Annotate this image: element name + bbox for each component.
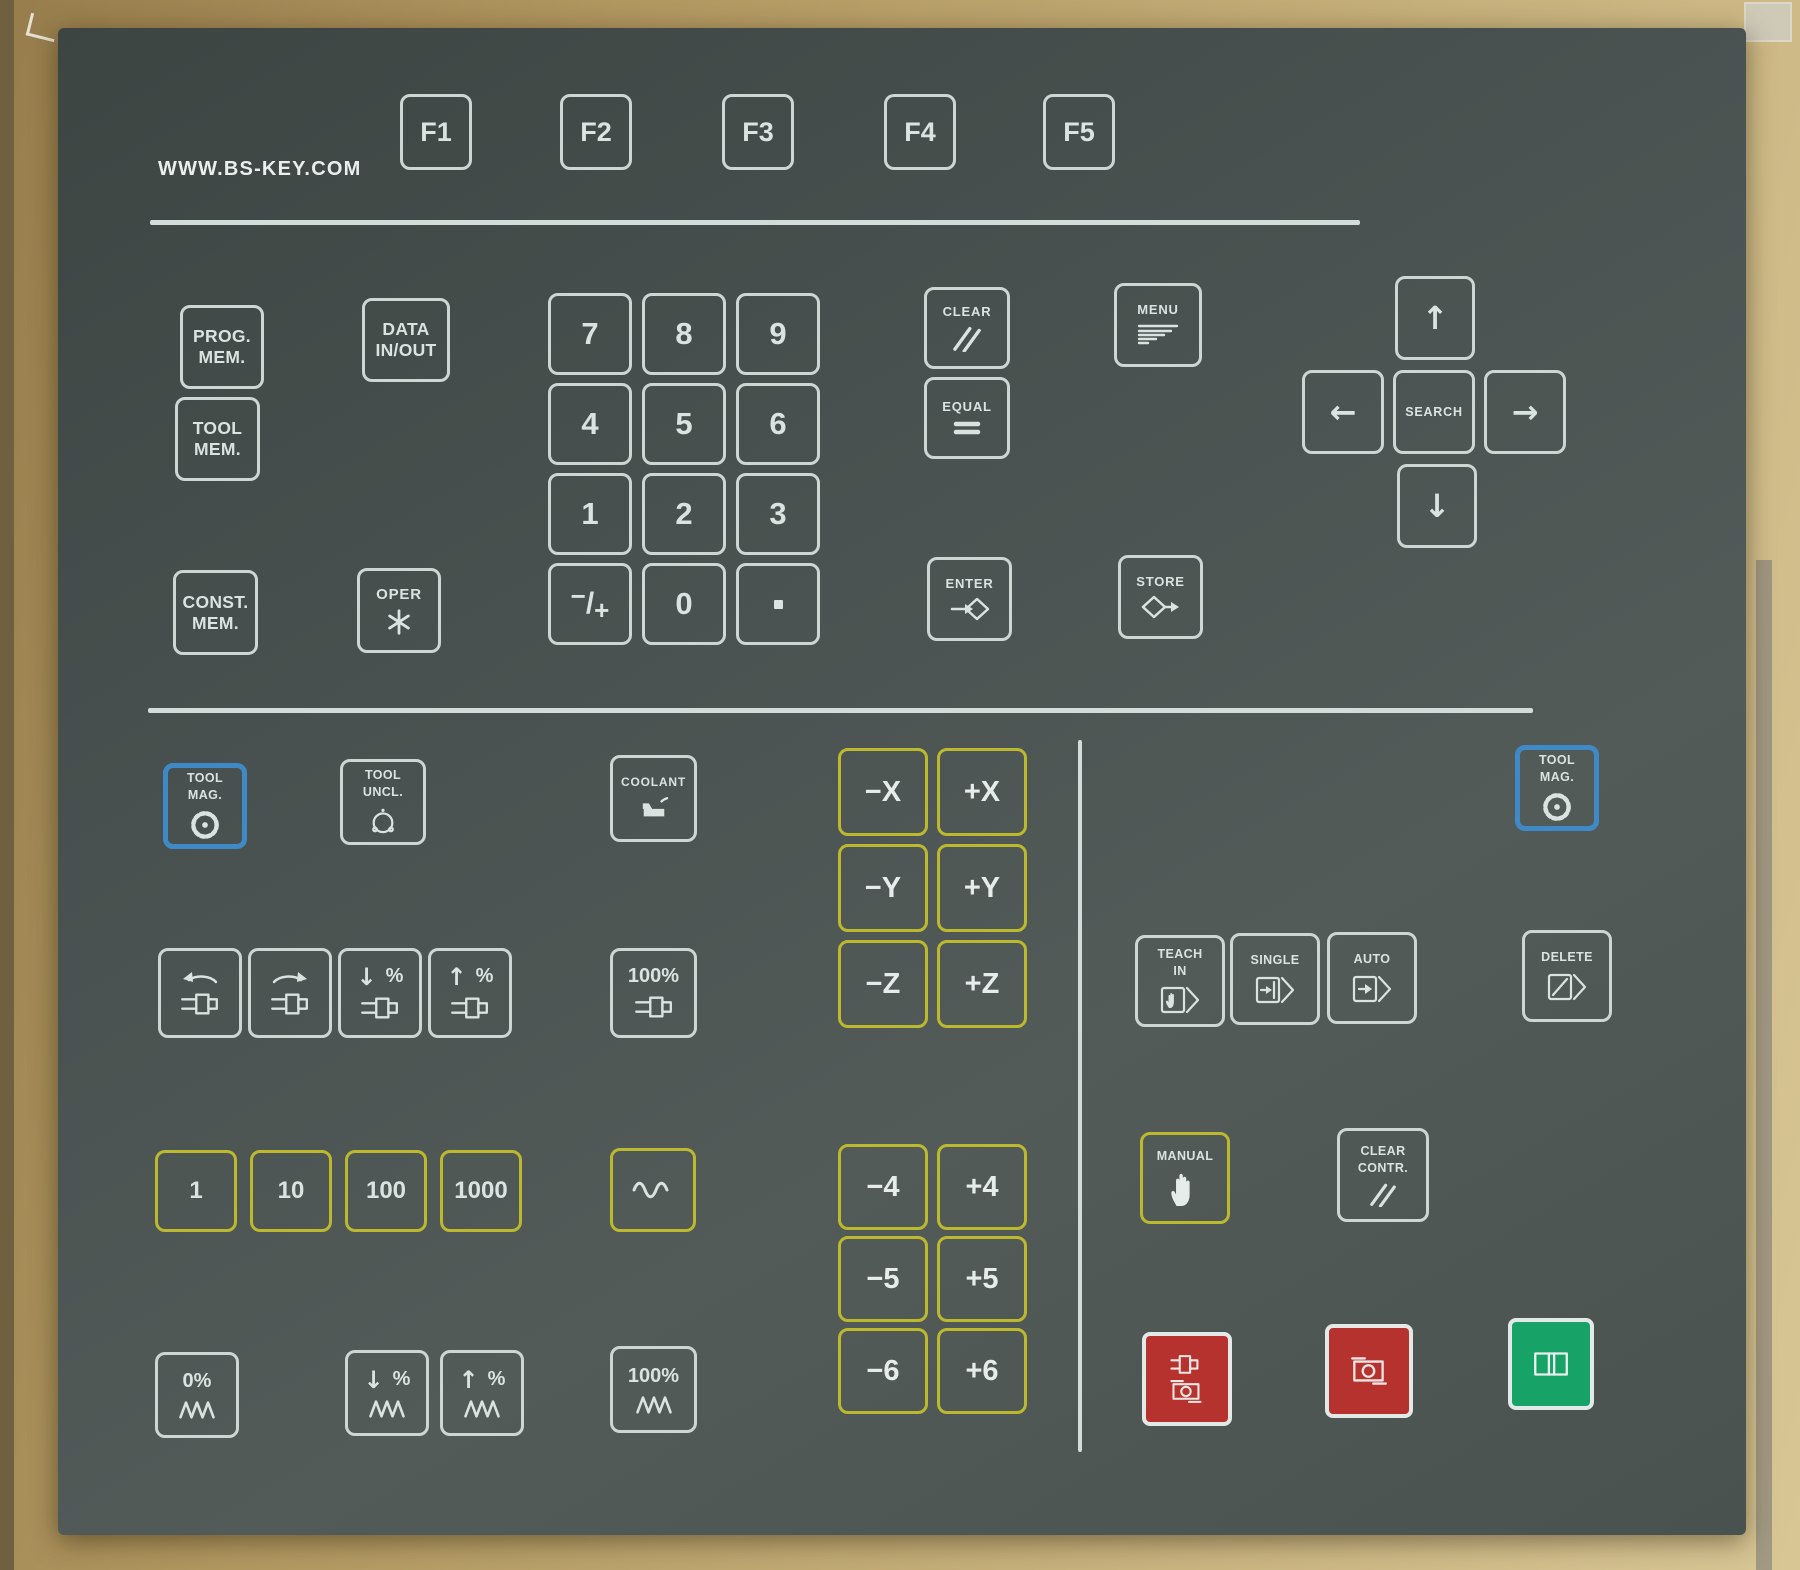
spindle-ccw-key[interactable] <box>158 948 242 1038</box>
delete-key[interactable]: DELETE <box>1522 930 1612 1022</box>
cardboard-left-edge <box>0 0 14 1570</box>
digit-3-label: 3 <box>769 496 786 532</box>
spindle-icon <box>357 994 403 1022</box>
feed-down-percent: ↓% <box>364 1368 411 1392</box>
teach-in-key[interactable]: TEACHIN <box>1135 935 1225 1027</box>
axis-4-minus-key[interactable]: −4 <box>838 1144 928 1230</box>
digit-8-key[interactable]: 8 <box>642 293 726 375</box>
digit-7-key[interactable]: 7 <box>548 293 632 375</box>
asterisk-icon <box>385 608 413 636</box>
left-arrow-icon: ← <box>1330 396 1357 428</box>
ccw-arc-arrow-icon <box>177 969 223 985</box>
spindle-icon <box>267 990 313 1018</box>
store-label: STORE <box>1136 574 1185 589</box>
continuous-jog-key[interactable] <box>610 1148 696 1232</box>
tool-unclamp-key[interactable]: TOOLUNCL. <box>340 759 426 845</box>
coolant-label: COOLANT <box>621 775 686 789</box>
plus-minus-label: −/+ <box>571 587 610 621</box>
digit-7-label: 7 <box>581 316 598 352</box>
decimal-point-key[interactable] <box>736 563 820 645</box>
spindle-override-100-key[interactable]: 100% <box>610 948 697 1038</box>
jog-step-1000-key[interactable]: 1000 <box>440 1150 522 1232</box>
coolant-key[interactable]: COOLANT <box>610 755 697 842</box>
tool-unclamp-label: TOOLUNCL. <box>363 767 403 800</box>
digit-0-key[interactable]: 0 <box>642 563 726 645</box>
equal-label: EQUAL <box>942 399 992 414</box>
paper-corner-mark <box>1744 2 1792 42</box>
digit-2-label: 2 <box>675 496 692 532</box>
axis-z-minus-label: −Z <box>866 968 901 1001</box>
digit-9-key[interactable]: 9 <box>736 293 820 375</box>
f3-key[interactable]: F3 <box>722 94 794 170</box>
spindle-icon <box>631 993 677 1021</box>
f1-key[interactable]: F1 <box>400 94 472 170</box>
f4-label: F4 <box>904 117 936 148</box>
axis-y-plus-label: +Y <box>964 872 1000 905</box>
clear-label: CLEAR <box>943 304 992 319</box>
axis-x-plus-key[interactable]: +X <box>937 748 1027 836</box>
digit-5-key[interactable]: 5 <box>642 383 726 465</box>
jog-step-100-key[interactable]: 100 <box>345 1150 427 1232</box>
jog-step-10-key[interactable]: 10 <box>250 1150 332 1232</box>
axis-z-plus-key[interactable]: +Z <box>937 940 1027 1028</box>
jog-step-10-label: 10 <box>278 1177 305 1205</box>
axis-z-plus-label: +Z <box>965 968 1000 1001</box>
jog-step-1000-label: 1000 <box>454 1177 507 1205</box>
spindle-and-feed-stop-icon <box>1165 1353 1209 1405</box>
oper-label: OPER <box>376 586 422 603</box>
auto-arrow-box-icon <box>1351 973 1393 1005</box>
down-arrow-icon: ↓ <box>1424 490 1451 522</box>
tool-mag-right-key[interactable]: TOOLMAG. <box>1515 745 1599 831</box>
axis-5-plus-label: +5 <box>965 1263 998 1296</box>
equal-key[interactable]: EQUAL <box>924 377 1010 459</box>
tool-magazine-wheel-icon <box>1540 790 1574 824</box>
tool-mem-key[interactable]: TOOLMEM. <box>175 397 260 481</box>
manual-mode-key[interactable]: MANUAL <box>1140 1132 1230 1224</box>
axis-4-plus-label: +4 <box>965 1171 998 1204</box>
spindle-up-percent: ↑% <box>447 965 494 989</box>
plus-minus-key[interactable]: −/+ <box>548 563 632 645</box>
sine-wave-icon <box>630 1179 676 1201</box>
zigzag-feed-icon <box>632 1393 676 1415</box>
spindle-icon <box>447 994 493 1022</box>
up-arrow-icon: ↑ <box>1422 302 1449 334</box>
cnc-keypad-panel: WWW.BS-KEY.COM F1 F2 F3 F4 F5 PROG.MEM. … <box>58 28 1746 1535</box>
clear-key[interactable]: CLEAR <box>924 287 1010 369</box>
prog-mem-label: PROG.MEM. <box>193 326 251 367</box>
prog-mem-key[interactable]: PROG.MEM. <box>180 305 264 389</box>
spindle-override-up-key[interactable]: ↑% <box>428 948 512 1038</box>
section-divider-middle <box>148 708 1533 713</box>
zigzag-feed-icon <box>460 1397 504 1419</box>
f5-key[interactable]: F5 <box>1043 94 1115 170</box>
oper-key[interactable]: OPER <box>357 568 441 653</box>
digit-1-label: 1 <box>581 496 598 532</box>
paper-corner-mark-left <box>26 13 60 42</box>
feed-override-0-key[interactable]: 0% <box>155 1352 239 1438</box>
enter-label: ENTER <box>945 576 993 591</box>
feed-stop-icon <box>1347 1353 1391 1389</box>
spindle-feed-stop-key[interactable] <box>1142 1332 1232 1426</box>
spindle-down-percent: ↓% <box>357 965 404 989</box>
brand-text: WWW.BS-KEY.COM <box>158 158 361 181</box>
down-arrow-key[interactable]: ↓ <box>1397 464 1477 548</box>
digit-4-key[interactable]: 4 <box>548 383 632 465</box>
equals-icon <box>952 419 982 437</box>
left-arrow-key[interactable]: ← <box>1302 370 1384 454</box>
const-mem-label: CONST.MEM. <box>183 592 249 633</box>
tool-mag-right-label: TOOLMAG. <box>1539 752 1575 785</box>
enter-arrow-diamond-icon <box>949 596 991 622</box>
digit-2-key[interactable]: 2 <box>642 473 726 555</box>
axis-6-minus-label: −6 <box>866 1355 899 1388</box>
search-label: SEARCH <box>1405 405 1463 419</box>
axis-x-minus-label: −X <box>865 776 901 809</box>
collet-icon <box>367 805 399 837</box>
feed-100-label: 100% <box>628 1365 679 1388</box>
spindle-100-label: 100% <box>628 965 679 988</box>
teach-in-label: TEACHIN <box>1157 946 1202 979</box>
cw-arc-arrow-icon <box>267 969 313 985</box>
digit-3-key[interactable]: 3 <box>736 473 820 555</box>
axis-y-plus-key[interactable]: +Y <box>937 844 1027 932</box>
zigzag-feed-icon <box>175 1398 219 1420</box>
axis-z-minus-key[interactable]: −Z <box>838 940 928 1028</box>
zigzag-feed-icon <box>365 1397 409 1419</box>
axis-6-plus-key[interactable]: +6 <box>937 1328 1027 1414</box>
f1-label: F1 <box>420 117 452 148</box>
store-key[interactable]: STORE <box>1118 555 1203 639</box>
cardboard-right-strip <box>1756 560 1772 1570</box>
up-arrow-icon: ↑ <box>459 1368 479 1392</box>
feed-override-up-key[interactable]: ↑% <box>440 1350 524 1436</box>
spindle-cw-key[interactable] <box>248 948 332 1038</box>
coolant-pump-icon <box>634 794 674 822</box>
menu-label: MENU <box>1137 302 1178 317</box>
clear-control-key[interactable]: CLEARCONTR. <box>1337 1128 1429 1222</box>
axis-5-minus-key[interactable]: −5 <box>838 1236 928 1322</box>
up-arrow-icon: ↑ <box>447 965 467 989</box>
teach-in-hand-box-arrow-icon <box>1159 984 1201 1016</box>
section-divider-vertical <box>1078 740 1082 1452</box>
jog-step-1-label: 1 <box>189 1177 202 1205</box>
axis-x-plus-label: +X <box>964 776 1000 809</box>
feed-up-percent: ↑% <box>459 1368 506 1392</box>
axis-5-minus-label: −5 <box>866 1263 899 1296</box>
hand-icon <box>1168 1170 1202 1208</box>
spindle-override-down-key[interactable]: ↓% <box>338 948 422 1038</box>
dot-glyph <box>774 600 783 609</box>
digit-4-label: 4 <box>581 406 598 442</box>
f3-label: F3 <box>742 117 774 148</box>
double-slash-icon <box>1368 1181 1398 1207</box>
digit-6-key[interactable]: 6 <box>736 383 820 465</box>
auto-mode-key[interactable]: AUTO <box>1327 932 1417 1024</box>
section-divider-top <box>150 220 1360 225</box>
const-mem-key[interactable]: CONST.MEM. <box>173 570 258 655</box>
photo-of-cnc-membrane-keypad: { "brand": {"label": "WWW.BS-KEY.COM"}, … <box>0 0 1800 1570</box>
feed-override-100-key[interactable]: 100% <box>610 1346 697 1433</box>
axis-y-minus-label: −Y <box>865 872 901 905</box>
right-arrow-key[interactable]: → <box>1484 370 1566 454</box>
single-block-key[interactable]: SINGLE <box>1230 933 1320 1025</box>
axis-4-plus-key[interactable]: +4 <box>937 1144 1027 1230</box>
tool-magazine-wheel-icon <box>188 808 222 842</box>
digit-6-label: 6 <box>769 406 786 442</box>
manual-label: MANUAL <box>1157 1148 1214 1164</box>
spindle-icon <box>177 990 223 1018</box>
feed-stop-key[interactable] <box>1325 1324 1413 1418</box>
data-in-out-key[interactable]: DATAIN/OUT <box>362 298 450 382</box>
digit-9-label: 9 <box>769 316 786 352</box>
tool-mag-left-label: TOOLMAG. <box>187 770 223 803</box>
search-key[interactable]: SEARCH <box>1393 370 1475 454</box>
double-slash-icon <box>951 324 983 352</box>
digit-0-label: 0 <box>675 586 692 622</box>
up-arrow-key[interactable]: ↑ <box>1395 276 1475 360</box>
down-arrow-icon: ↓ <box>357 965 377 989</box>
tool-mem-label: TOOLMEM. <box>193 418 243 459</box>
axis-y-minus-key[interactable]: −Y <box>838 844 928 932</box>
tool-mag-left-key[interactable]: TOOLMAG. <box>163 763 247 849</box>
axis-4-minus-label: −4 <box>866 1171 899 1204</box>
jog-step-100-label: 100 <box>366 1177 406 1205</box>
jog-step-1-key[interactable]: 1 <box>155 1150 237 1232</box>
enter-key[interactable]: ENTER <box>927 557 1012 641</box>
axis-5-plus-key[interactable]: +5 <box>937 1236 1027 1322</box>
cycle-start-key[interactable] <box>1508 1318 1594 1410</box>
f2-label: F2 <box>580 117 612 148</box>
digit-5-label: 5 <box>675 406 692 442</box>
axis-6-plus-label: +6 <box>965 1355 998 1388</box>
data-in-out-label: DATAIN/OUT <box>375 319 436 360</box>
single-label: SINGLE <box>1251 952 1300 968</box>
axis-6-minus-key[interactable]: −6 <box>838 1328 928 1414</box>
feed-override-down-key[interactable]: ↓% <box>345 1350 429 1436</box>
f4-key[interactable]: F4 <box>884 94 956 170</box>
clear-control-label: CLEARCONTR. <box>1358 1143 1408 1176</box>
delete-box-slash-arrow-icon <box>1546 971 1588 1003</box>
right-arrow-icon: → <box>1512 396 1539 428</box>
f5-label: F5 <box>1063 117 1095 148</box>
down-arrow-icon: ↓ <box>364 1368 384 1392</box>
axis-x-minus-key[interactable]: −X <box>838 748 928 836</box>
start-panel-icon <box>1530 1348 1572 1380</box>
f2-key[interactable]: F2 <box>560 94 632 170</box>
menu-lines-icon <box>1135 322 1181 348</box>
delete-label: DELETE <box>1541 949 1593 965</box>
store-arrow-diamond-icon <box>1140 594 1182 620</box>
single-block-arrow-box-icon <box>1254 974 1296 1006</box>
menu-key[interactable]: MENU <box>1114 283 1202 367</box>
digit-1-key[interactable]: 1 <box>548 473 632 555</box>
feed-0-label: 0% <box>183 1370 212 1393</box>
digit-8-label: 8 <box>675 316 692 352</box>
auto-label: AUTO <box>1354 951 1391 967</box>
